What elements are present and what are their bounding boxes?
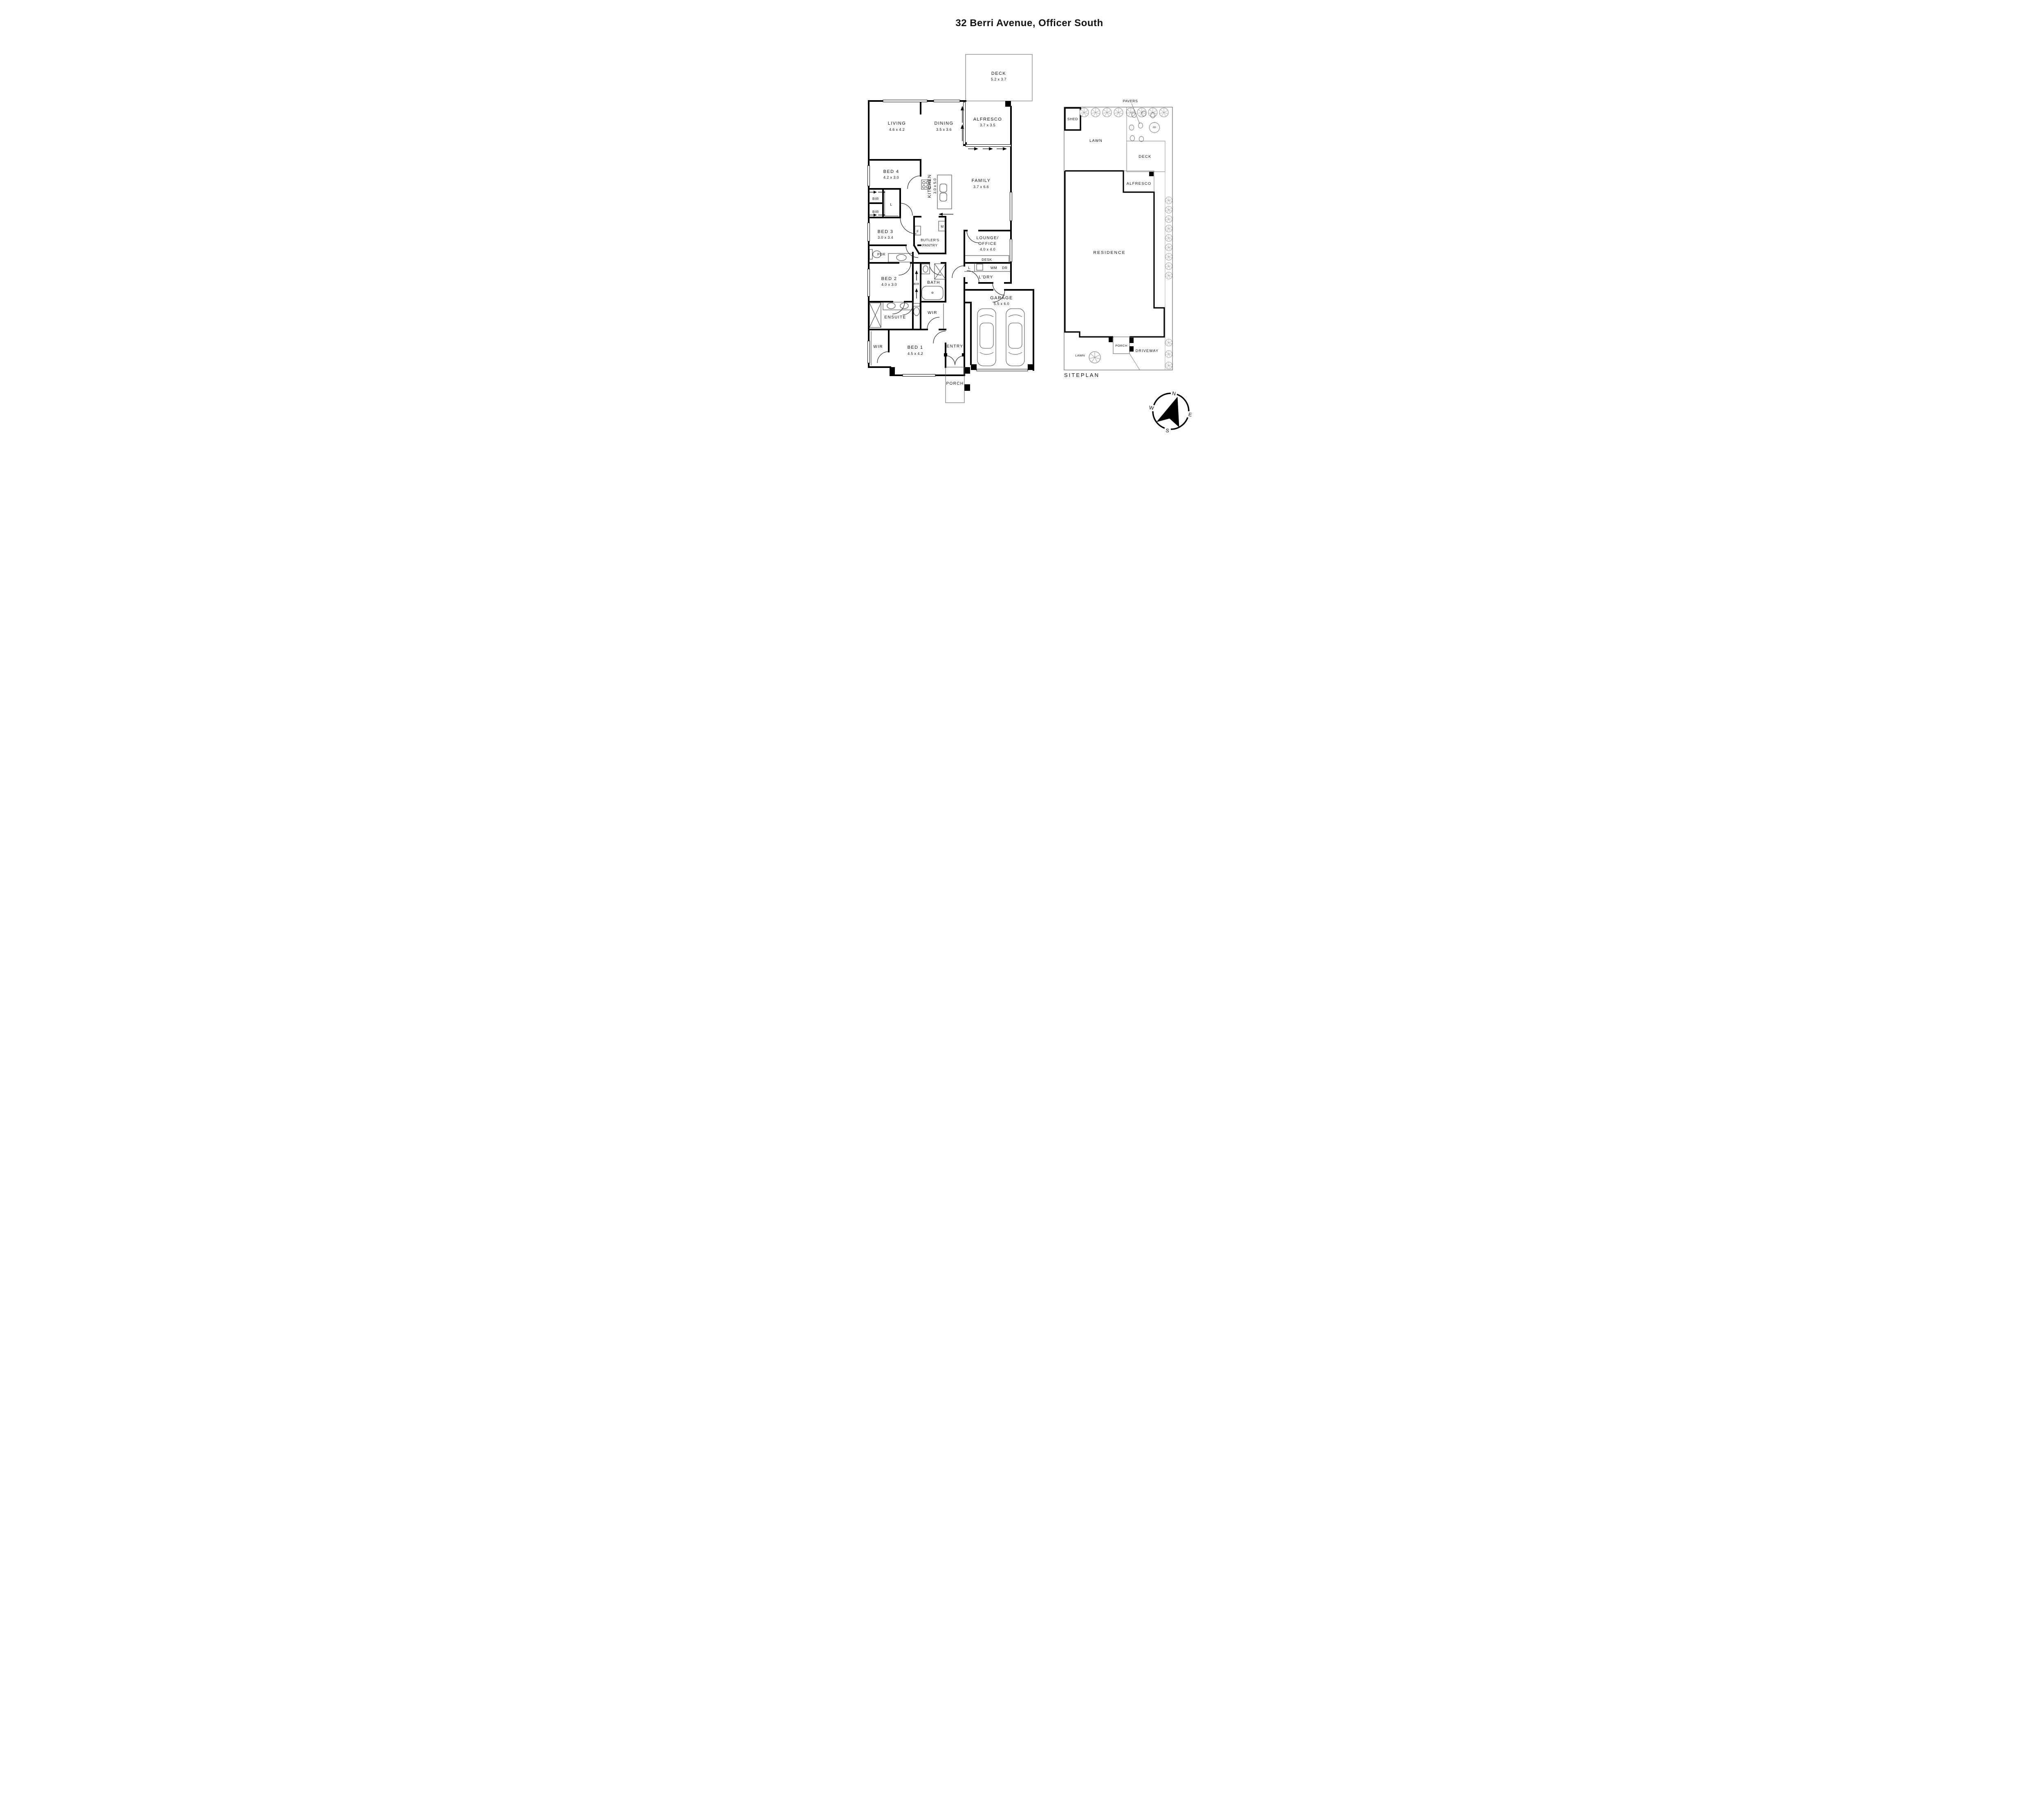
bed1-label: BED 1 [907, 345, 923, 350]
tree-icon [1080, 108, 1089, 117]
dining-label: DINING [934, 121, 953, 126]
bed2-label: BED 2 [881, 276, 897, 281]
dining-dims: 3.5 x 3.6 [936, 128, 951, 132]
compass-w: W [1148, 405, 1154, 411]
site-deck-label: DECK [1139, 155, 1151, 159]
bed1-dims: 4.5 x 4.2 [907, 352, 923, 356]
washing-machine-label: WM [990, 266, 997, 270]
lawn-rear-label: LAWN [1089, 139, 1103, 143]
sink-icon [940, 184, 947, 192]
bed4-label: BED 4 [883, 169, 899, 174]
butlers-pantry-label-2: PANTRY [922, 243, 937, 247]
room-labels: DECK 5.2 x 3.7 ALFRESCO 3.7 x 3.5 LIVING… [872, 71, 1013, 386]
driveway-trees [1165, 339, 1172, 369]
pantry-arrow-head [939, 213, 943, 216]
bathtub-icon [922, 286, 943, 300]
siteplan: SHED PAVERS LAWN DECK ALFRESCO RESIDENCE… [1064, 99, 1172, 378]
ensuite-label: ENSUITE [884, 315, 906, 320]
laundry-linen-label: L [968, 266, 970, 270]
tree-icon [1165, 197, 1172, 204]
car-icon [1006, 309, 1024, 366]
cooktop-burner [922, 182, 925, 184]
site-porch-label: PORCH [1115, 344, 1127, 348]
tree-icon [1165, 272, 1172, 279]
shower-cross [870, 303, 881, 327]
living-label: LIVING [888, 121, 905, 126]
main-floorplan: DECK 5.2 x 3.7 ALFRESCO 3.7 x 3.5 LIVING… [867, 54, 1033, 403]
kitchen-dims: 3.0 x 5.0 [933, 178, 937, 194]
toilet-cistern [913, 303, 920, 306]
paver [1130, 136, 1134, 141]
bir-label: BIR [872, 210, 879, 214]
walls [869, 101, 1033, 375]
window [1010, 239, 1012, 262]
bed3-dims: 3.0 x 3.4 [877, 235, 893, 240]
tree-icon [1089, 352, 1100, 363]
bir-label: BIR [872, 197, 879, 201]
laundry-tub [977, 264, 983, 270]
butlers-pantry-label-1: BUTLER'S [921, 238, 939, 242]
basin-icon [900, 303, 908, 309]
tree-icon [1165, 351, 1172, 358]
tree-icon [1165, 235, 1172, 242]
lounge-label-2: OFFICE [978, 242, 997, 246]
tree-icon [1159, 108, 1168, 117]
sliding-door-track [963, 102, 965, 144]
window [867, 166, 870, 186]
garage-door-jamb-left [971, 364, 977, 370]
garage-label: GARAGE [990, 296, 1013, 300]
garage-door-panel [977, 369, 1028, 371]
driveway-label: DRIVEWAY [1135, 349, 1159, 353]
dryer-label: DR [1002, 266, 1007, 270]
tree-icon [1165, 216, 1172, 223]
wir-label: WIR [873, 345, 883, 349]
shed-label: SHED [1067, 117, 1078, 121]
pdr-label: PDR [877, 252, 885, 256]
tree-column [1165, 197, 1172, 279]
car-icon [977, 309, 996, 366]
tree-icon [1114, 108, 1123, 117]
desk-label: DESK [982, 258, 992, 262]
deck-pier [1005, 101, 1011, 107]
wir-label: WIR [928, 311, 937, 315]
tree-icon [1148, 108, 1157, 117]
site-alfresco-pier [1149, 172, 1154, 176]
garage-door-jamb-right [1028, 364, 1033, 370]
porch-pier-bottom [964, 384, 970, 391]
tree-icon [1165, 244, 1172, 251]
deck-dims: 5.2 x 3.7 [991, 77, 1006, 81]
bir2-arrow-head [915, 270, 918, 292]
porch-label: PORCH [946, 381, 964, 386]
window [867, 269, 870, 296]
entry-label: ENTRY [946, 344, 963, 349]
floorplan-page: 32 Berri Avenue, Officer South [706, 0, 1338, 447]
sink-icon [940, 193, 947, 201]
bed2-dims: 4.0 x 3.0 [881, 282, 896, 287]
basin-icon [923, 266, 928, 272]
compass-s: S [1165, 428, 1170, 434]
window [934, 100, 960, 102]
entry-jamb-left [944, 353, 947, 356]
fridge-label: F [917, 229, 919, 233]
paver [1138, 123, 1143, 128]
bath-label: BATH [927, 280, 940, 285]
tree-icon [1103, 108, 1112, 117]
basin-icon [887, 303, 895, 309]
window [903, 374, 935, 377]
bed3-label: BED 3 [877, 229, 893, 234]
shower-cross [935, 264, 946, 279]
site-pier [1109, 337, 1113, 342]
site-pier [1130, 338, 1134, 343]
driveway-edge [1130, 354, 1140, 370]
lawn-front-label: LAWN [1075, 354, 1085, 357]
site-alfresco-label: ALFRESCO [1126, 182, 1151, 186]
tree-icon [1165, 263, 1172, 270]
floorplan-canvas: 32 Berri Avenue, Officer South [706, 0, 1338, 447]
tree-icon [1165, 339, 1172, 346]
lounge-dims: 4.0 x 4.0 [979, 247, 995, 251]
porch-pier-top [964, 367, 970, 374]
stacker-door-track [966, 145, 1011, 147]
linen-label: L [890, 202, 892, 206]
window [867, 341, 870, 363]
door-arcs [877, 176, 1005, 365]
compass-rose: N E S W [1145, 387, 1195, 437]
tree-icon [1165, 225, 1172, 232]
compass-n: N [1171, 390, 1176, 397]
pavers-label: PAVERS [1123, 99, 1138, 103]
deck-label: DECK [991, 71, 1006, 76]
microwave-label: M [941, 224, 944, 229]
alfresco-label: ALFRESCO [973, 117, 1002, 122]
lounge-label-1: LOUNGE/ [976, 236, 999, 240]
toilet-cistern [870, 249, 872, 259]
tree-icon [1165, 206, 1172, 213]
tree-icon [1091, 108, 1100, 117]
bed4-dims: 4.2 x 3.0 [883, 175, 899, 179]
window [1010, 192, 1012, 221]
family-dims: 3.7 x 6.6 [973, 185, 988, 189]
paver [1129, 125, 1134, 130]
page-title: 32 Berri Avenue, Officer South [955, 18, 1103, 29]
fire-pit-label: FP [1153, 127, 1156, 129]
living-dims: 4.6 x 4.2 [889, 128, 904, 132]
garage-cars [977, 309, 1024, 366]
site-boundary [1064, 107, 1172, 370]
family-label: FAMILY [971, 178, 991, 183]
tree-icon [1165, 253, 1172, 260]
tree-icon [1165, 362, 1172, 369]
kitchen-label: KITCHEN [927, 174, 932, 198]
window [883, 100, 927, 102]
site-pier [1130, 346, 1134, 352]
basin-icon [896, 255, 906, 261]
cooktop-burner [922, 186, 925, 188]
toilet-icon [914, 307, 919, 316]
residence-label: RESIDENCE [1093, 250, 1125, 255]
ldry-label: L'DRY [979, 275, 993, 280]
window [867, 223, 870, 241]
bir-label: BIR [913, 282, 919, 286]
compass-e: E [1188, 412, 1192, 418]
north-arrow [1156, 394, 1184, 427]
alfresco-dims: 3.7 x 3.5 [979, 123, 995, 127]
bed1-corner-pier [890, 367, 895, 375]
siteplan-caption: SITEPLAN [1064, 372, 1100, 378]
bathtub-drain [932, 292, 933, 294]
garage-dims: 5.5 x 6.0 [993, 302, 1009, 306]
